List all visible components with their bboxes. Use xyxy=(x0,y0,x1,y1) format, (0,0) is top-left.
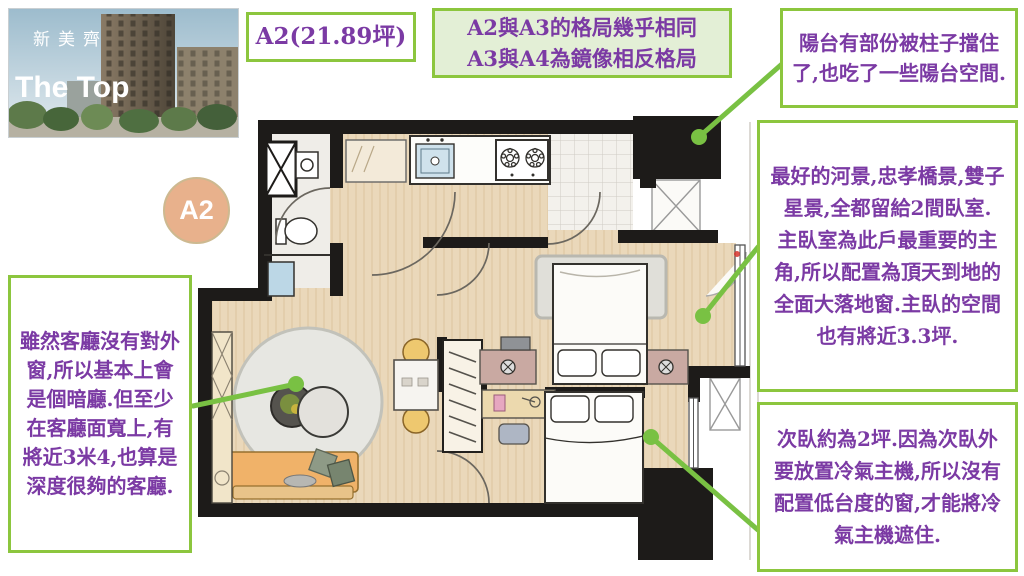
pillow-icon-4 xyxy=(595,396,633,422)
toilet-icon xyxy=(285,218,317,244)
balcony-note-text: 陽台有部份被柱子擋住了,也吃了一些陽台空間. xyxy=(791,28,1007,89)
living-room-note-box: 雖然客廳沒有對外窗,所以基本上會是個暗廳.但至少在客廳面寬上,有將近3米4,也算… xyxy=(8,275,192,553)
layout-note-box: A2與A3的格局幾乎相同 A3與A4為鏡像相反格局 xyxy=(432,8,732,78)
desk-chair-icon xyxy=(499,424,529,444)
layout-note-line2: A3與A4為鏡像相反格局 xyxy=(435,43,729,75)
dining-table xyxy=(394,360,438,410)
desk-book-icon xyxy=(494,395,505,411)
sofa-pillow-icon-2 xyxy=(328,460,355,487)
unit-badge-label: A2 xyxy=(179,195,214,226)
living-room-note-text: 雖然客廳沒有對外窗,所以基本上會是個暗廳.但至少在客廳面寬上,有將近3米4,也算… xyxy=(17,327,183,501)
balcony-pillar xyxy=(633,116,721,179)
balcony-floor xyxy=(548,134,633,230)
dining-chair-icon-2 xyxy=(403,407,429,433)
unit-title-box: A2(21.89坪) xyxy=(246,12,416,62)
unit-badge: A2 xyxy=(163,177,230,244)
pillow-icon-3 xyxy=(551,396,589,422)
shaft-icon xyxy=(266,142,296,196)
sofa-tray-icon xyxy=(284,475,316,487)
kitchen-cabinet-icon xyxy=(346,140,406,182)
pillow-icon xyxy=(558,350,596,376)
wardrobe xyxy=(443,340,482,452)
view-note-paragraph2: 主臥室為此戶最重要的主角,所以配置為頂天到地的全面大落地窗.主臥的空間也有將近3… xyxy=(768,224,1007,352)
shower-door-icon xyxy=(268,262,294,296)
unit-title-text: A2(21.89坪) xyxy=(249,19,413,55)
tv-icon xyxy=(501,337,530,350)
stove-icon xyxy=(496,140,548,180)
view-note-paragraph1: 最好的河景,忠孝橋景,雙子星景,全都留給2間臥室. xyxy=(768,160,1007,224)
second-bedroom-note-text: 次臥約為2坪.因為次臥外要放置冷氣主機,所以沒有配置低台度的窗,才能將冷氣主機遮… xyxy=(768,423,1007,551)
pillow-icon-2 xyxy=(602,350,640,376)
balcony-note-box: 陽台有部份被柱子擋住了,也吃了一些陽台空間. xyxy=(780,8,1018,108)
second-bedroom-note-box: 次臥約為2坪.因為次臥外要放置冷氣主機,所以沒有配置低台度的窗,才能將冷氣主機遮… xyxy=(757,402,1018,572)
bathroom-sink-icon xyxy=(296,152,318,178)
layout-note-line1: A2與A3的格局幾乎相同 xyxy=(435,12,729,44)
view-note-box: 最好的河景,忠孝橋景,雙子星景,全都留給2間臥室. 主臥室為此戶最重要的主角,所… xyxy=(757,120,1018,392)
coffee-table-icon xyxy=(298,387,348,437)
slide: 新美齊 The Top xyxy=(0,0,1024,576)
kitchen-fixtures xyxy=(346,136,550,184)
